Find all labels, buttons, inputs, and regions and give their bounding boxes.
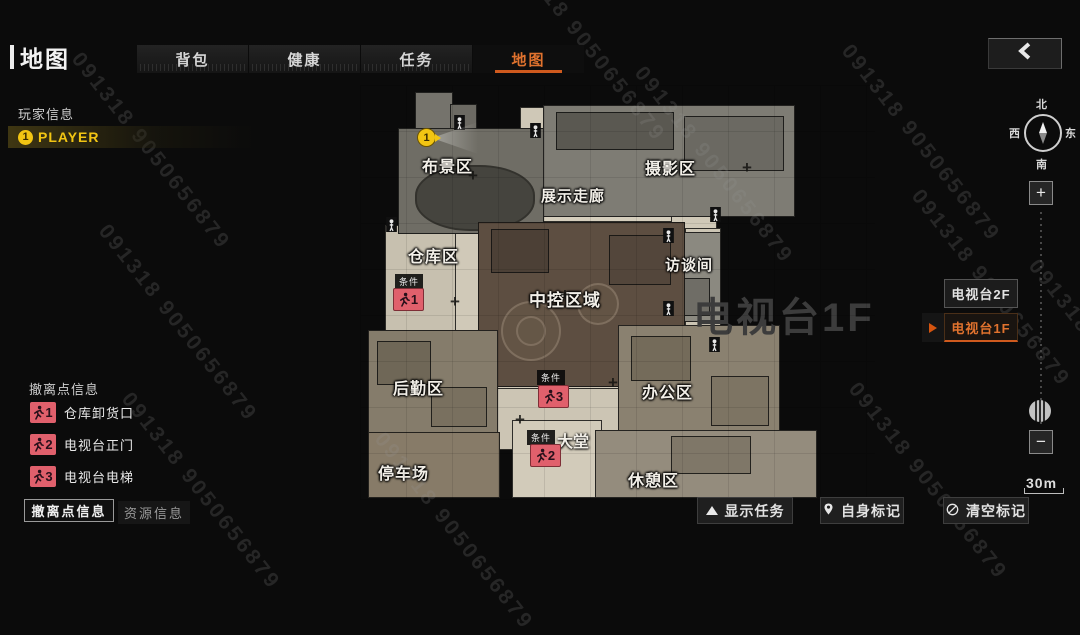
evac-list-item-3[interactable]: 3 电视台电梯: [30, 465, 134, 487]
compass-south: 南: [1036, 156, 1047, 172]
player-info-heading: 玩家信息: [18, 104, 74, 123]
door-icon: [530, 123, 541, 138]
map-cross-mark: +: [608, 378, 618, 388]
zoom-in-button[interactable]: +: [1029, 181, 1053, 205]
evac-run-icon: 3: [30, 466, 56, 487]
zoom-slider-handle[interactable]: [1029, 400, 1051, 422]
location-pin-icon: [823, 502, 834, 519]
evac-run-icon: 2: [30, 434, 56, 455]
triangle-right-icon: [929, 323, 937, 333]
evac-run-icon: 1: [30, 402, 56, 423]
evac-info-heading: 撤离点信息: [29, 379, 99, 398]
running-person-icon: [33, 437, 44, 452]
watermark-text: 091318 9050656879: [66, 48, 235, 255]
running-person-icon: [544, 389, 555, 404]
clear-marks-button[interactable]: 清空标记: [943, 497, 1029, 524]
title-accent-bar: [10, 45, 14, 69]
running-person-icon: [536, 448, 547, 463]
map-cross-mark: +: [515, 415, 525, 425]
label-gallery: 展示走廊: [541, 185, 605, 206]
label-lobby: 大堂: [557, 428, 589, 452]
floor-button-2f[interactable]: 电视台2F: [944, 279, 1018, 308]
label-photography: 摄影区: [645, 155, 696, 179]
compass-north: 北: [1036, 96, 1047, 112]
map-evac-condition-tag: 条件: [537, 370, 565, 385]
tab-health[interactable]: 健康: [249, 45, 360, 73]
compass-dial: [1024, 114, 1062, 152]
label-office: 办公区: [642, 379, 693, 403]
label-warehouse: 仓库区: [408, 243, 459, 267]
running-person-icon: [33, 469, 44, 484]
bottom-tab-evac-info[interactable]: 撤离点信息: [24, 499, 114, 522]
door-icon: [386, 217, 397, 232]
label-interview: 访谈间: [665, 254, 713, 275]
top-tab-bar: 背包 健康 任务 地图: [137, 45, 585, 73]
map-annex-1: [415, 92, 453, 130]
map-cross-mark: +: [560, 290, 570, 300]
tab-backpack[interactable]: 背包: [137, 45, 248, 73]
map-viewport[interactable]: 布景区 摄影区 展示走廊 仓库区 访谈间 中控区域 后勤区 办公区 停车场 休憩…: [360, 85, 875, 500]
evac-list-item-2[interactable]: 2 电视台正门: [30, 433, 134, 455]
self-mark-button[interactable]: 自身标记: [820, 497, 904, 524]
compass-needle-north: [1039, 122, 1047, 133]
player-row[interactable]: 1 PLAYER: [8, 126, 254, 148]
up-arrow-icon: [706, 506, 718, 515]
player-number-badge: 1: [18, 130, 33, 145]
chevron-left-icon: [1014, 40, 1036, 67]
label-set-area: 布景区: [422, 153, 473, 177]
map-cross-mark: +: [450, 297, 460, 307]
compass-needle-south: [1039, 133, 1047, 144]
map-cross-mark: +: [468, 171, 478, 181]
floor-button-1f[interactable]: 电视台1F: [944, 313, 1018, 342]
door-icon: [663, 228, 674, 243]
floor-selected-caret: [922, 313, 944, 342]
map-evac-marker-3[interactable]: 3: [538, 385, 569, 408]
map-floor-watermark: 电视台1F: [693, 285, 875, 343]
compass-east: 东: [1065, 125, 1076, 141]
tab-tasks[interactable]: 任务: [361, 45, 472, 73]
map-evac-marker-2[interactable]: 2: [530, 444, 561, 467]
compass-west: 西: [1009, 125, 1020, 141]
zoom-slider-track[interactable]: [1040, 212, 1042, 427]
door-icon: [663, 301, 674, 316]
running-person-icon: [399, 292, 410, 307]
map-evac-marker-1[interactable]: 1: [393, 288, 424, 311]
watermark-text: 091318 9050656879: [93, 220, 262, 427]
door-icon: [710, 207, 721, 222]
watermark-text: 091318 9050656879: [116, 388, 285, 595]
clear-circle-icon: [946, 503, 959, 519]
label-logistics: 后勤区: [393, 375, 444, 399]
map-evac-condition-tag: 条件: [395, 274, 423, 289]
player-name: PLAYER: [38, 129, 100, 145]
back-button[interactable]: [988, 38, 1062, 69]
show-tasks-button[interactable]: 显示任务: [697, 497, 793, 524]
door-icon: [709, 337, 720, 352]
map-cross-mark: +: [742, 163, 752, 173]
bottom-tab-resource-info[interactable]: 资源信息: [118, 501, 190, 524]
compass: 北 西 东 南: [1005, 96, 1077, 178]
map-evac-condition-tag: 条件: [527, 430, 555, 445]
label-rest: 休憩区: [628, 467, 679, 491]
map-scale-bar: [1024, 488, 1064, 494]
label-parking: 停车场: [378, 460, 429, 484]
evac-list-item-1[interactable]: 1 仓库卸货口: [30, 401, 134, 423]
tab-map[interactable]: 地图: [473, 45, 584, 73]
page-title: 地图: [10, 40, 70, 74]
player-map-marker: 1: [417, 128, 436, 147]
zoom-out-button[interactable]: −: [1029, 430, 1053, 454]
running-person-icon: [33, 405, 44, 420]
